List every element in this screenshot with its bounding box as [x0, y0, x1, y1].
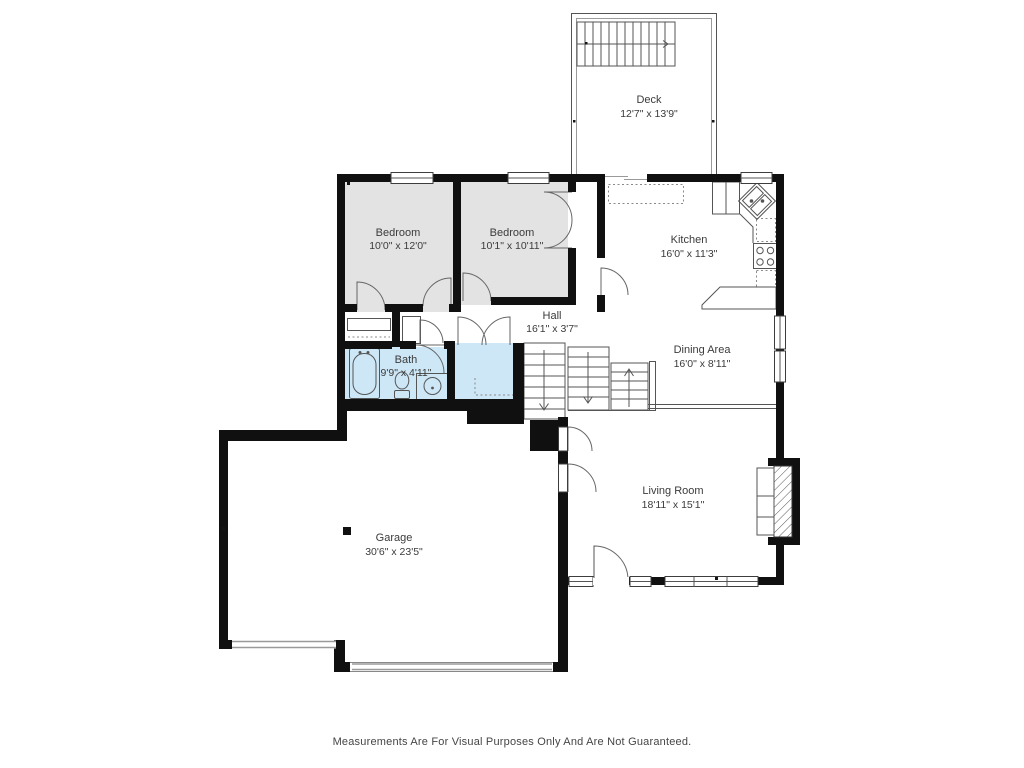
hall-dims: 16'1" x 3'7"	[526, 323, 578, 335]
deck-dims: 12'7" x 13'9"	[620, 108, 678, 120]
bedroom1-closet	[348, 319, 391, 338]
laundry-floor	[453, 343, 515, 401]
door-leaf	[559, 427, 568, 451]
stove	[754, 244, 777, 269]
bedroom1-label: Bedroom	[376, 227, 421, 239]
hall-label: Hall	[543, 310, 562, 322]
garage-post	[343, 527, 351, 535]
bedroom2-label: Bedroom	[490, 227, 535, 239]
stairs-down-a	[524, 343, 565, 419]
living-label: Living Room	[642, 485, 703, 497]
kitchen-sink	[739, 183, 776, 220]
disclaimer-text: Measurements Are For Visual Purposes Onl…	[0, 736, 1024, 748]
bedroom1-dims: 10'0" x 12'0"	[369, 240, 427, 252]
front-door-opening	[593, 577, 629, 585]
entry-door-arc	[568, 464, 596, 492]
kitchen-label: Kitchen	[671, 234, 708, 246]
fireplace	[757, 466, 792, 537]
sliding-door	[605, 173, 647, 183]
door-leaf	[559, 464, 568, 492]
stairs-down-b	[568, 347, 609, 410]
kitchen-cabinets	[609, 185, 777, 310]
garage-dims: 30'6" x 23'5"	[365, 546, 423, 558]
floorplan-page: Deck 12'7" x 13'9" Bedroom 10'0" x 12'0"…	[0, 0, 1024, 768]
kitchen-dims: 16'0" x 11'3"	[661, 248, 718, 260]
stairs-up	[611, 363, 648, 410]
linen-closet	[403, 317, 421, 344]
pantry-door-arc	[601, 268, 628, 295]
bath-dims: 9'9" x 4'11"	[381, 367, 432, 379]
deck-label: Deck	[636, 94, 662, 106]
linen-door-arc	[420, 320, 443, 343]
dining-dims: 16'0" x 8'11"	[674, 358, 731, 370]
floor-plan: Deck 12'7" x 13'9" Bedroom 10'0" x 12'0"…	[0, 0, 1024, 768]
dining-label: Dining Area	[674, 344, 732, 356]
bedroom2-dims: 10'1" x 10'11"	[481, 240, 544, 252]
bath-label: Bath	[395, 354, 418, 366]
garage-label: Garage	[376, 532, 413, 544]
refrigerator	[713, 182, 740, 214]
stair-rail	[650, 362, 656, 411]
front-door-arc	[594, 546, 628, 580]
living-dims: 18'11" x 15'1"	[642, 499, 705, 511]
entry-door-arc	[568, 427, 592, 451]
